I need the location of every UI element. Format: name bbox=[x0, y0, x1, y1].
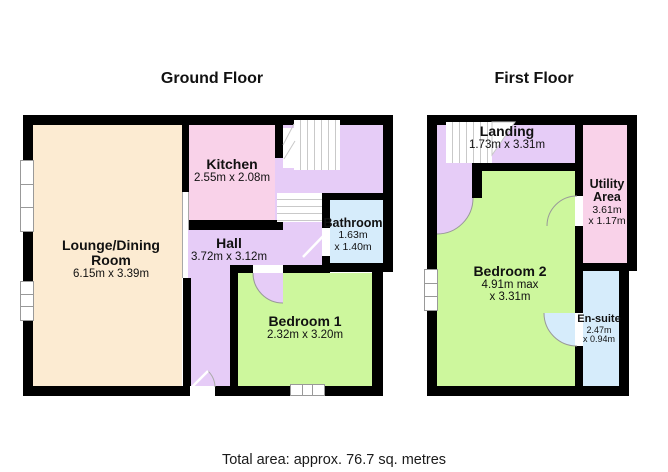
bedroom1-doorway bbox=[253, 265, 283, 273]
bedroom2-dims-line1: 4.91m max bbox=[445, 279, 575, 291]
first-floor-title: First Floor bbox=[458, 70, 610, 88]
utility-bottom-wall bbox=[575, 263, 637, 271]
kitchen-bottom-wall bbox=[188, 220, 283, 230]
lounge-name-line2: Room bbox=[36, 253, 186, 268]
ensuite-label: En-suite 2.47m x 0.94m bbox=[576, 314, 622, 345]
bathroom-dims-line2: x 1.40m bbox=[322, 242, 384, 253]
kitchen-right-wall bbox=[275, 125, 283, 158]
hall-dims: 3.72m x 3.12m bbox=[184, 251, 274, 263]
hall-label: Hall 3.72m x 3.12m bbox=[184, 236, 274, 263]
landing-door-jamb bbox=[472, 163, 482, 198]
bathroom-bottom-wall bbox=[322, 263, 392, 272]
kitchen-name: Kitchen bbox=[186, 157, 278, 172]
landing-dims: 1.73m x 3.31m bbox=[447, 139, 567, 151]
bedroom1-label: Bedroom 1 2.32m x 3.20m bbox=[240, 314, 370, 341]
bathroom-name: Bathroom bbox=[322, 217, 384, 230]
utility-name-line1: Utility bbox=[578, 178, 636, 191]
utility-label: Utility Area 3.61m x 1.17m bbox=[578, 178, 636, 227]
hall-name: Hall bbox=[184, 236, 274, 251]
lounge-window-lower bbox=[20, 281, 34, 321]
ensuite-dims-line2: x 0.94m bbox=[576, 335, 622, 345]
bedroom1-dims: 2.32m x 3.20m bbox=[240, 329, 370, 341]
lounge-name-line1: Lounge/Dining bbox=[36, 238, 186, 253]
kitchen-dims: 2.55m x 2.08m bbox=[186, 172, 278, 184]
ground-right-wall-lower bbox=[372, 263, 383, 396]
bedroom1-left-wall bbox=[230, 265, 238, 396]
lounge-label: Lounge/Dining Room 6.15m x 3.39m bbox=[36, 238, 186, 280]
hall-corridor-area bbox=[188, 265, 230, 386]
bathroom-label: Bathroom 1.63m x 1.40m bbox=[322, 217, 384, 253]
bedroom1-name: Bedroom 1 bbox=[240, 314, 370, 329]
first-left-wall bbox=[427, 115, 437, 396]
landing-name: Landing bbox=[447, 124, 567, 139]
total-area-text: Total area: approx. 76.7 sq. metres bbox=[0, 452, 668, 468]
ensuite-name: En-suite bbox=[576, 314, 622, 326]
utility-dims-line2: x 1.17m bbox=[578, 216, 636, 227]
bedroom2-dims-line2: x 3.31m bbox=[445, 291, 575, 303]
bedroom2-name: Bedroom 2 bbox=[445, 264, 575, 279]
bedroom2-window bbox=[424, 269, 438, 311]
landing-bedroom2-wall bbox=[472, 163, 577, 171]
lounge-hall-wall bbox=[183, 278, 191, 386]
floorplan-canvas: Ground Floor First Floor bbox=[0, 0, 668, 472]
front-doorway bbox=[190, 386, 215, 396]
ground-left-wall bbox=[23, 115, 33, 396]
first-bottom-wall bbox=[427, 386, 629, 396]
stairs-lower-run bbox=[277, 193, 322, 222]
stairs-upper-run bbox=[294, 120, 340, 170]
landing-label: Landing 1.73m x 3.31m bbox=[447, 124, 567, 151]
lounge-kitchen-opening bbox=[182, 192, 189, 230]
bathroom-dims-line1: 1.63m bbox=[322, 230, 384, 241]
bathroom-top-wall bbox=[320, 193, 393, 200]
utility-name-line2: Area bbox=[578, 191, 636, 204]
lounge-window-upper bbox=[20, 160, 34, 232]
ground-floor-title: Ground Floor bbox=[136, 70, 288, 88]
bedroom2-label: Bedroom 2 4.91m max x 3.31m bbox=[445, 264, 575, 304]
lounge-dims: 6.15m x 3.39m bbox=[36, 268, 186, 280]
kitchen-label: Kitchen 2.55m x 2.08m bbox=[186, 157, 278, 184]
bedroom1-window bbox=[290, 384, 325, 396]
